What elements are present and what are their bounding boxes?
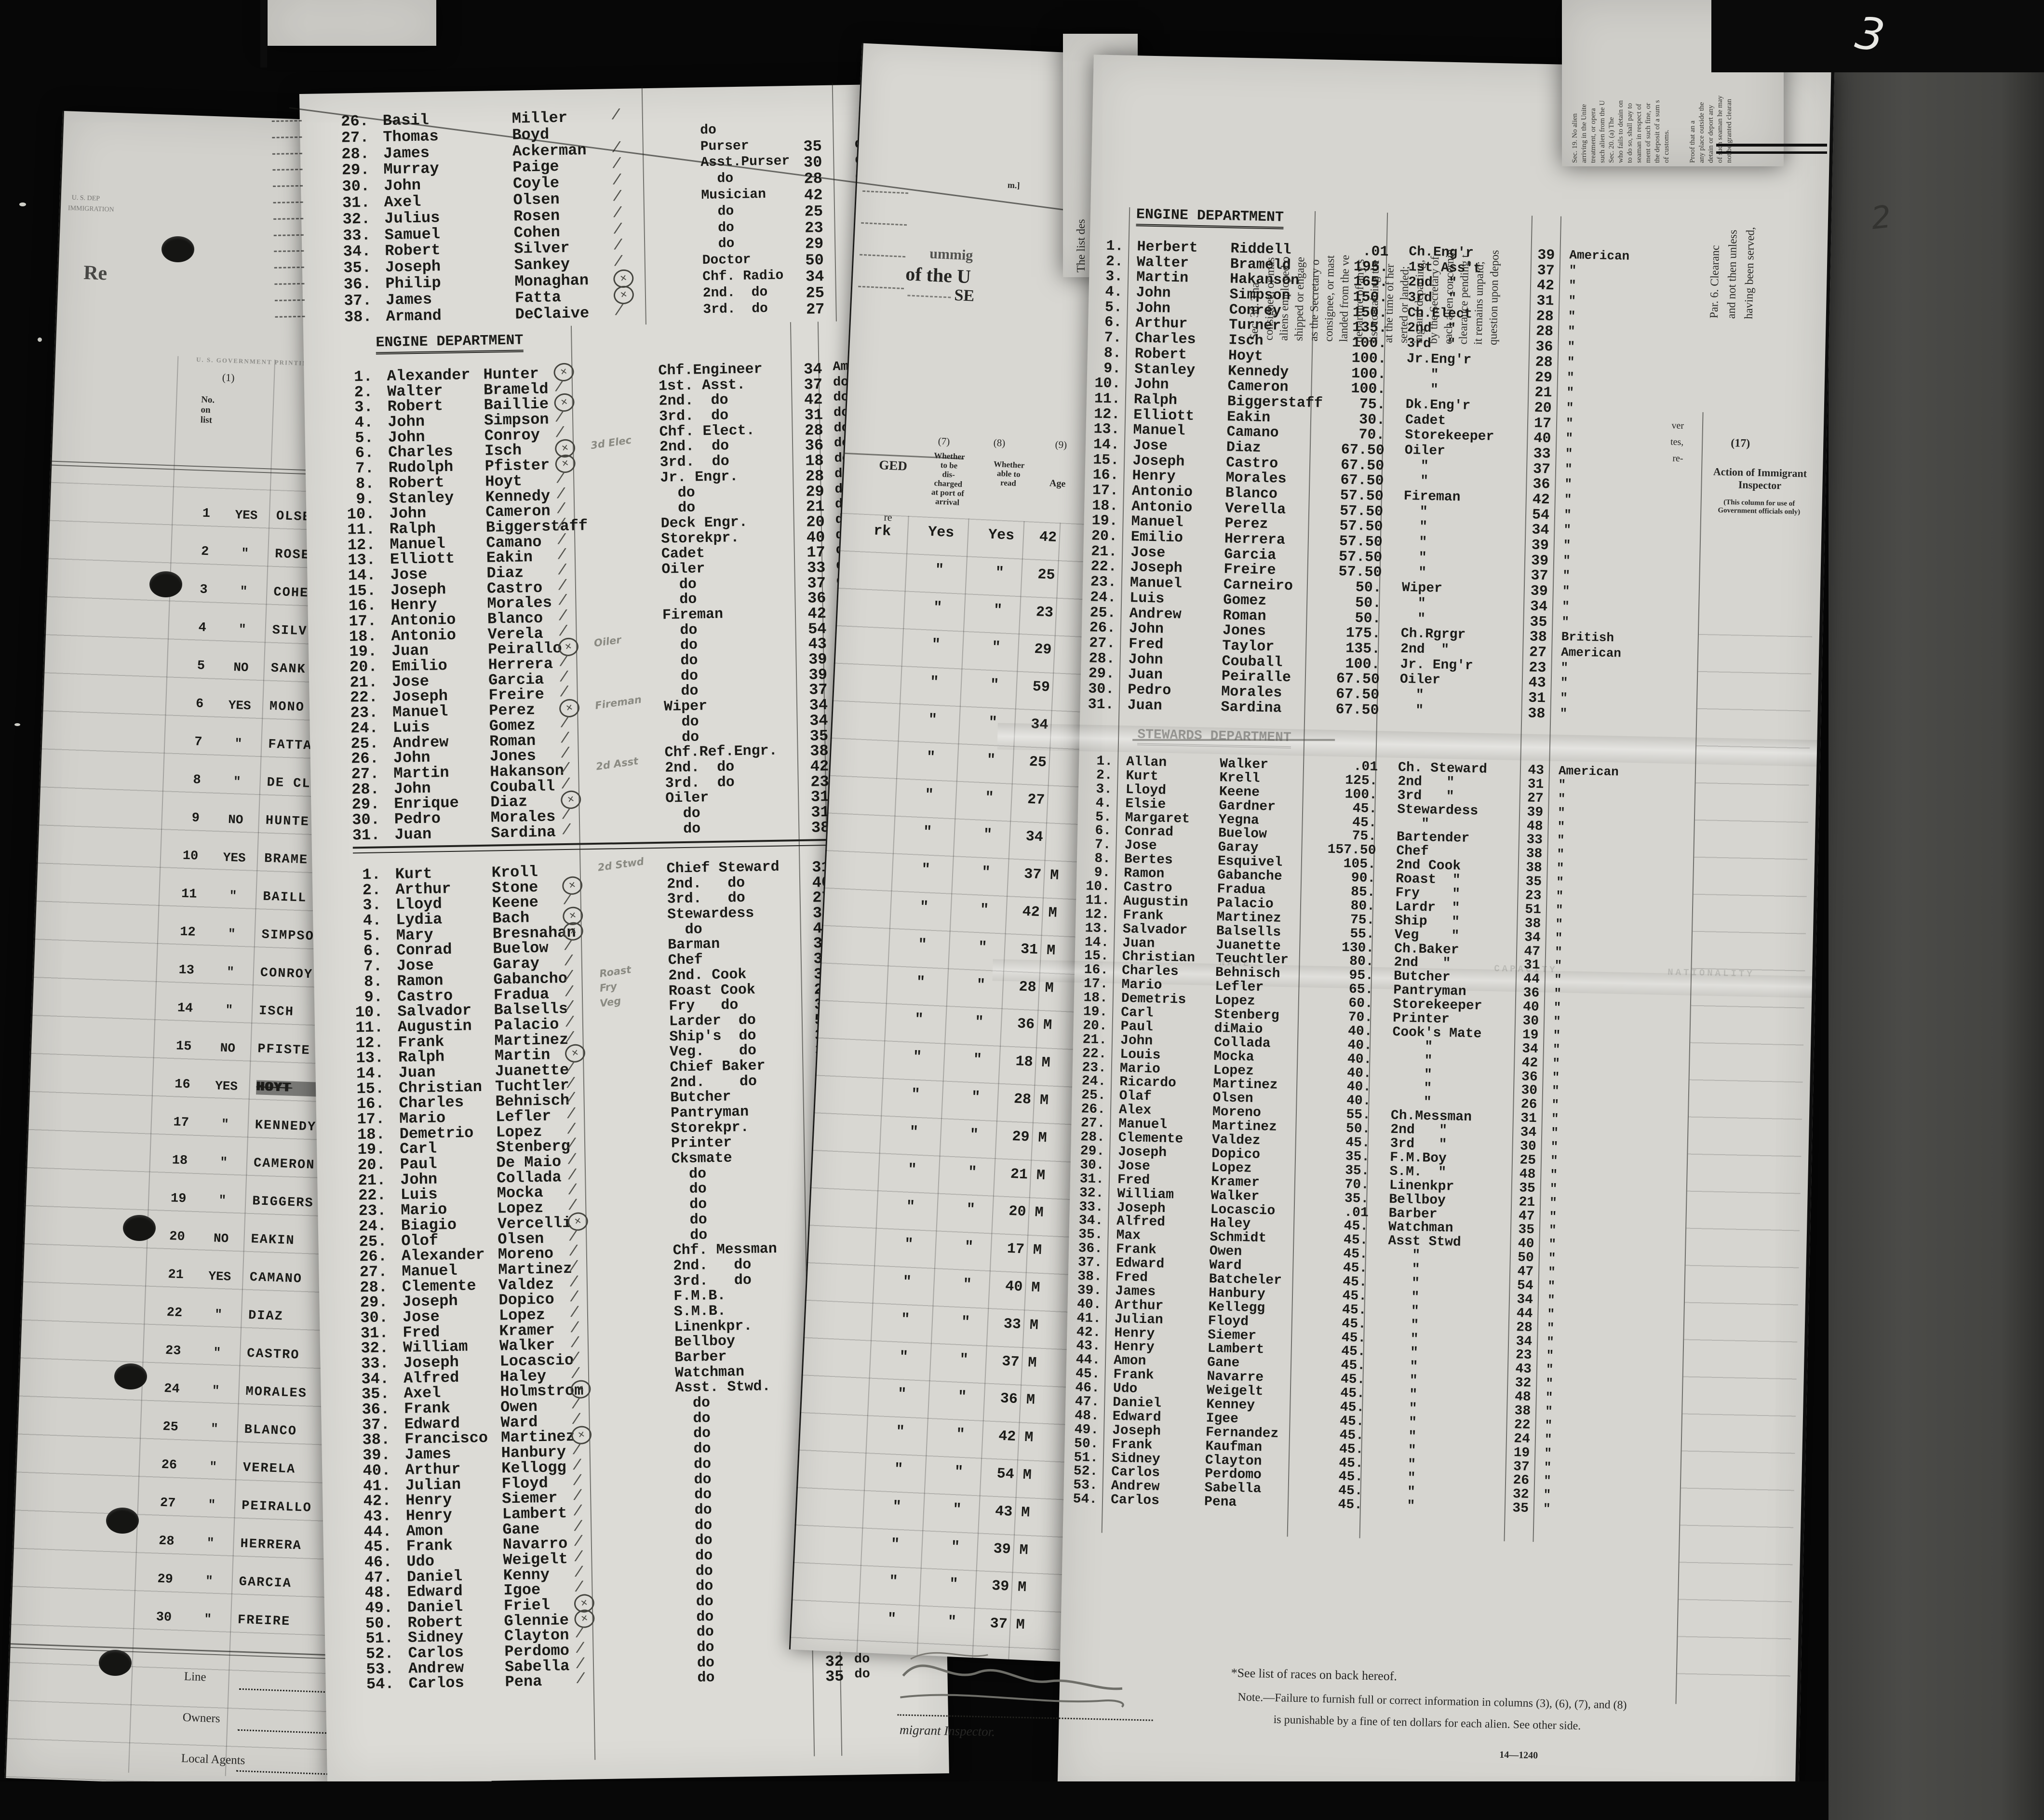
member-last-voyage: " (188, 1345, 246, 1361)
last-name: Pena (505, 1673, 542, 1691)
age: 31 (1526, 293, 1554, 310)
row-number: 35. (1071, 1227, 1103, 1242)
row-number: 27. (331, 128, 369, 147)
heading-fragment: of the U (905, 262, 971, 288)
row-number: 33. (333, 226, 371, 244)
check-mark (561, 820, 572, 839)
top-left-slip (268, 0, 436, 46)
first-name: Ramon (1124, 866, 1165, 882)
able-to-read: " (928, 1613, 976, 1631)
rating: Barber (1388, 1206, 1437, 1222)
able-to-read: " (936, 1426, 985, 1444)
rating: do (672, 1166, 707, 1183)
age: 36 (1511, 985, 1540, 1001)
rating: do (701, 171, 734, 187)
age: 38 (1517, 705, 1546, 722)
age: 34 (1505, 1292, 1533, 1308)
first-name: Carlos (1111, 1465, 1160, 1481)
row-number: 8. (1079, 851, 1111, 866)
rating: Butcher (670, 1089, 731, 1106)
row-number: 42. (1069, 1324, 1101, 1340)
first-name: James (1115, 1284, 1156, 1300)
row-number: 43. (1069, 1338, 1101, 1354)
row-number: 35. (334, 259, 372, 277)
rating: do (675, 1410, 711, 1427)
first-name: Castro (1123, 880, 1172, 896)
able-to-read: " (943, 1276, 992, 1294)
row-number: 29. (332, 161, 370, 179)
rating: do (679, 1624, 714, 1641)
double-bar (1716, 144, 1827, 147)
footer-label: Owners (182, 1711, 220, 1726)
first-name: Fred (1117, 1173, 1150, 1188)
agency-stamp: U. S. DEP (71, 194, 100, 203)
last-name: Blanco (1225, 485, 1278, 502)
row-number: 8 (157, 772, 201, 788)
last-name: Walker (1210, 1188, 1259, 1204)
last-name: Taylor (1222, 638, 1275, 655)
rating: " (1387, 1262, 1420, 1277)
nationality: " (1564, 508, 1572, 522)
first-name: Juan (394, 825, 431, 843)
nationality: " (1555, 944, 1562, 959)
last-name: Isch (1228, 332, 1264, 350)
rating: do (702, 236, 735, 252)
rating: Purser (700, 138, 749, 154)
first-name: Ralph (1134, 391, 1178, 409)
col1-label: No. on list (200, 394, 215, 425)
member-last-voyage: YES (211, 697, 269, 714)
engine-department-title: ENGINE DEPARTMENT (376, 332, 524, 354)
rating: do (677, 1502, 712, 1519)
first-name: John (1128, 651, 1163, 669)
row-number: 13 (150, 962, 194, 978)
first-name: Alfred (1116, 1214, 1165, 1230)
row-number: 39. (1070, 1283, 1102, 1298)
age: 47 (1506, 1264, 1534, 1280)
nationality: " (1549, 1209, 1557, 1224)
first-name: Manuel (1118, 1117, 1167, 1132)
last-name: Mocka (1213, 1049, 1254, 1065)
discharged-at-port: " (869, 1460, 928, 1479)
last-name: Sardina (491, 823, 556, 842)
discharged-at-port: " (876, 1310, 934, 1329)
discharged-at-port: " (868, 1497, 926, 1516)
last-name: Sankey (514, 256, 570, 274)
rating: " (1383, 1456, 1416, 1472)
last-name: Gane (1207, 1355, 1240, 1371)
agency-stamp-2: IMMIGRATION (68, 205, 114, 214)
col1-number: (1) (222, 371, 235, 384)
wage: 67.50 (1306, 701, 1379, 718)
stewards-department-title: STEWARDS DEPARTMENT (1137, 728, 1291, 749)
first-name: Henry (1114, 1325, 1155, 1341)
row-number: 45. (1068, 1366, 1100, 1382)
first-name: John (1136, 300, 1171, 317)
member-last-voyage: " (215, 583, 273, 600)
first-name: Robert (1135, 346, 1187, 363)
age: 34 (1512, 930, 1541, 945)
age (791, 105, 821, 105)
last-name: Paige (512, 158, 559, 176)
first-name: Paul (1120, 1019, 1153, 1035)
last-name: Diaz (1226, 439, 1262, 457)
rating: " (1388, 1248, 1421, 1263)
age: 36 (1509, 1069, 1538, 1084)
first-name: Fred (1115, 1270, 1148, 1285)
text-fragment: ummig (929, 245, 973, 264)
row-number: 47. (1068, 1394, 1100, 1410)
discharged-at-port: " (878, 1273, 936, 1292)
row-number: 16 (147, 1076, 190, 1092)
first-name: Conrad (1125, 824, 1173, 840)
nationality: " (1547, 1293, 1555, 1307)
rating: S.M.B. (674, 1303, 726, 1321)
nationality: American (1569, 248, 1629, 264)
heading-fragment: SE (954, 286, 975, 306)
row-number: 8. (1090, 345, 1122, 362)
age: 26 (1509, 1097, 1537, 1112)
first-name: Udo (1113, 1381, 1138, 1397)
member-last-voyage: YES (190, 1268, 249, 1285)
rating: " (1383, 1498, 1415, 1514)
nationality: " (1546, 1376, 1553, 1391)
age: 39 (1520, 583, 1548, 600)
footer-label: Line (184, 1670, 206, 1685)
age: 37 (1501, 1459, 1530, 1474)
row-number: 7 (159, 734, 202, 750)
first-name: Juan (1127, 697, 1162, 715)
last-name: Keene (1219, 784, 1260, 800)
nationality: " (1545, 1404, 1553, 1419)
first-name: Jose (1124, 838, 1157, 853)
row-number: 25. (1074, 1088, 1106, 1103)
nationality: " (1569, 263, 1576, 278)
age: 28 (1525, 308, 1554, 325)
rating: " (1386, 1317, 1419, 1333)
nationality: " (1543, 1502, 1551, 1516)
rating: Wiper (1402, 580, 1443, 596)
member-last-voyage: " (193, 1192, 252, 1209)
nationality: " (1550, 1167, 1558, 1182)
nationality: " (1560, 660, 1568, 674)
row-number: 15. (1077, 948, 1109, 964)
age: 23 (1513, 888, 1542, 903)
row-number: 2. (1092, 253, 1124, 270)
nationality: " (1554, 986, 1561, 1001)
row-number: 26 (134, 1457, 177, 1473)
rating: Cadet (661, 545, 705, 562)
rating: Bellboy (674, 1334, 736, 1351)
nationality: " (1563, 553, 1571, 568)
nationality: " (1545, 1432, 1552, 1446)
age: 25 (1508, 1153, 1536, 1168)
rating: do (672, 1196, 707, 1213)
first-name: Daniel (1113, 1395, 1161, 1411)
rating: do (675, 1395, 711, 1412)
edge-numeral: 2 (1869, 199, 1893, 237)
row-number: 23 (137, 1343, 181, 1359)
nationality: " (1562, 568, 1570, 583)
discharged-at-port: " (908, 598, 967, 617)
first-name: Frank (1112, 1437, 1153, 1453)
last-name: Castro (1226, 455, 1278, 472)
first-name: Olaf (1119, 1089, 1152, 1104)
last-name: Garcia (1224, 546, 1277, 564)
discharged-at-port: " (901, 748, 960, 767)
first-name: Jose (1133, 437, 1168, 455)
first-name: Elsie (1125, 796, 1166, 812)
first-name: Joseph (1118, 1145, 1167, 1160)
row-number: 33. (1072, 1199, 1103, 1214)
nationality: " (1546, 1362, 1554, 1377)
rating: Barman (668, 936, 720, 954)
last-name: Fradua (1217, 882, 1265, 898)
row-number: 6. (1080, 823, 1112, 839)
age: 34 (1510, 1041, 1539, 1057)
row-number: 11. (1078, 893, 1110, 908)
age: 30 (1509, 1083, 1538, 1098)
member-last-voyage: NO (206, 811, 265, 828)
member-last-voyage: NO (212, 660, 270, 676)
first-name: Carl (1121, 1005, 1154, 1021)
rating: " (1383, 1470, 1416, 1486)
member-last-voyage: YES (197, 1078, 255, 1094)
row-number: 28. (332, 145, 370, 163)
last-name: Walker (1220, 756, 1268, 772)
rating: 3rd. do (659, 453, 729, 471)
age: 27 (1515, 791, 1544, 806)
age: 37 (1526, 262, 1555, 279)
age: 37 (1522, 461, 1551, 478)
first-name: Henry (1132, 468, 1176, 485)
nationality: " (1557, 847, 1564, 862)
first-name: John (384, 176, 421, 195)
last-name: Kenney (1206, 1397, 1255, 1413)
rating: do (701, 220, 734, 236)
nationality: " (1556, 875, 1564, 890)
member-last-voyage: " (204, 888, 262, 904)
row-number: 2 (165, 543, 209, 559)
discharged-at-port: " (905, 673, 963, 692)
nationality: " (1548, 1251, 1556, 1266)
member-last-voyage: YES (217, 507, 275, 524)
pencil-note: Veg (599, 995, 622, 1010)
member-last-voyage: " (181, 1535, 240, 1551)
col7-label: Whether to be dis- charged at port of ar… (914, 450, 983, 508)
rating: Doctor (702, 253, 751, 269)
nationality: " (1544, 1460, 1551, 1474)
discharged-at-port: " (879, 1235, 938, 1254)
row-number: 30. (1083, 681, 1115, 698)
row-number: 25 (134, 1419, 178, 1435)
row-number: 36. (1071, 1241, 1103, 1256)
rating: " (1404, 458, 1429, 474)
nationality: British (1561, 630, 1614, 645)
row-number: 4 (162, 620, 206, 635)
nationality: " (1553, 1028, 1560, 1043)
discharged-at-port: " (873, 1385, 931, 1404)
rating: do (680, 1655, 715, 1672)
age: 35 (1501, 1501, 1529, 1516)
member-last-voyage: " (200, 1002, 258, 1018)
right-page-sheet: Sec. 36. Tha consignee, or mas aliens em… (975, 27, 1831, 1808)
rating: " (1387, 1289, 1420, 1305)
first-name: Andrew (1129, 606, 1182, 623)
first-name: Manuel (1131, 514, 1183, 531)
row-number: 34. (1072, 1213, 1103, 1228)
row-number: 49. (1067, 1422, 1099, 1438)
nationality: " (1552, 1084, 1560, 1098)
rating: " (1385, 1345, 1418, 1361)
rating: do (662, 622, 698, 639)
rating: do (678, 1548, 713, 1564)
age (792, 121, 821, 121)
nationality: " (1556, 903, 1563, 917)
last-name: Garay (1218, 840, 1259, 856)
first-name: Pedro (1128, 682, 1171, 699)
age: 39 (1527, 247, 1555, 264)
rating: 2nd " (1408, 275, 1457, 291)
age: 42 (1521, 491, 1550, 508)
nationality: " (1551, 1098, 1559, 1112)
row-number: 32. (333, 210, 371, 228)
row-number: 31. (1082, 696, 1114, 713)
rating: " (1404, 473, 1428, 489)
nationality: " (1568, 294, 1576, 308)
age: 19 (1502, 1445, 1530, 1460)
rating: Oiler (1400, 672, 1441, 688)
row-number: 16. (1087, 467, 1119, 484)
rating: Printer (671, 1135, 732, 1152)
first-name: Joseph (1116, 1200, 1165, 1216)
nationality: " (1548, 1265, 1556, 1280)
last-name: Turner (1229, 317, 1281, 335)
row-number: 26. (1074, 1102, 1106, 1117)
row-number: 12. (1078, 907, 1110, 922)
age: 21 (1524, 384, 1552, 401)
last-name: Lopez (1211, 1160, 1252, 1176)
first-name: James (386, 290, 432, 309)
first-name: Juan (1122, 936, 1155, 951)
rating: 2nd. do (703, 285, 768, 301)
row-number: 21. (1086, 543, 1117, 560)
rating: do (663, 668, 699, 685)
age: 31 (1509, 1111, 1537, 1126)
last-name: diMaio (1214, 1021, 1263, 1037)
row-number: 9. (1089, 360, 1121, 377)
rating: " (1402, 565, 1426, 580)
age: 30 (792, 153, 822, 172)
discharged-at-port: " (891, 973, 950, 992)
last-name: Igee (1206, 1411, 1238, 1427)
age: 54 (1505, 1278, 1533, 1294)
member-last-voyage: " (180, 1573, 238, 1589)
member-last-voyage: " (202, 926, 261, 942)
member-last-voyage: " (189, 1307, 248, 1323)
first-name: Fred (1129, 636, 1164, 653)
rating: do (676, 1456, 712, 1473)
rating: do (679, 1593, 714, 1610)
nationality: " (1569, 278, 1576, 293)
rating: " (1386, 1331, 1419, 1347)
first-name: Arthur (1135, 315, 1188, 333)
row-number: 30. (332, 177, 370, 196)
row-number: 19 (143, 1190, 187, 1206)
age: 29 (1524, 369, 1553, 386)
age: 26 (1501, 1473, 1530, 1488)
able-to-read: " (940, 1350, 988, 1369)
nationality: " (1547, 1279, 1555, 1294)
nationality: " (1558, 805, 1565, 820)
age: 44 (1512, 971, 1540, 987)
discharged-at-port: " (888, 1048, 946, 1066)
age: 48 (1515, 819, 1543, 834)
age: 27 (1519, 644, 1547, 661)
nationality: " (1558, 778, 1566, 792)
row-number: 4. (1091, 283, 1123, 300)
member-last-voyage: " (179, 1611, 237, 1627)
first-name: Julian (1115, 1311, 1163, 1327)
member-last-voyage: " (195, 1154, 253, 1171)
age: 36 (1522, 476, 1550, 493)
last-name: Moreno (1212, 1105, 1261, 1120)
age: 43 (1504, 1362, 1532, 1377)
nationality: " (1557, 819, 1565, 834)
nationality: " (1556, 861, 1564, 876)
inspector-signature (895, 1630, 1167, 1722)
row-number: 41. (1070, 1310, 1102, 1326)
row-number: 24. (1085, 589, 1116, 606)
nationality: " (1552, 1056, 1560, 1070)
row-number: 48. (1067, 1408, 1099, 1424)
last-name: Dopico (1211, 1146, 1260, 1162)
age: 38 (800, 819, 830, 837)
discharged-at-port: " (907, 635, 965, 654)
nationality: " (1560, 691, 1568, 705)
footer-label: Local Agents (181, 1752, 245, 1768)
member-last-voyage: " (216, 545, 274, 562)
nationality: " (1548, 1237, 1556, 1252)
member-last-voyage: " (208, 773, 266, 790)
nationality: " (1556, 889, 1563, 903)
engine-department-title: ENGINE DEPARTMENT (1136, 206, 1284, 229)
first-name: Bertes (1124, 852, 1173, 868)
rating: do (678, 1578, 713, 1595)
row-number: 22. (1085, 559, 1117, 576)
discharged-at-port: " (898, 823, 956, 842)
row-number: 25. (1084, 605, 1116, 621)
last-name: Olsen (1212, 1091, 1253, 1106)
discharged-at-port: " (881, 1198, 940, 1216)
rating: Cksmate (671, 1150, 732, 1167)
age: 31 (1512, 957, 1540, 973)
rating: Jr. Eng'r (1400, 657, 1473, 673)
rating: " (1406, 382, 1439, 397)
age: 34 (1521, 522, 1549, 539)
row-number: 9. (1079, 865, 1111, 880)
rating: " (1399, 703, 1424, 718)
row-number: 1 (167, 505, 211, 521)
nationality: " (1567, 339, 1575, 354)
rating: Fireman (662, 607, 724, 624)
member-last-voyage: " (209, 735, 268, 752)
age: 31 (1518, 690, 1546, 707)
age: 38 (1519, 629, 1547, 646)
nationality: " (1550, 1181, 1558, 1196)
row-number: 31. (345, 826, 380, 844)
age: 38 (1513, 916, 1541, 931)
